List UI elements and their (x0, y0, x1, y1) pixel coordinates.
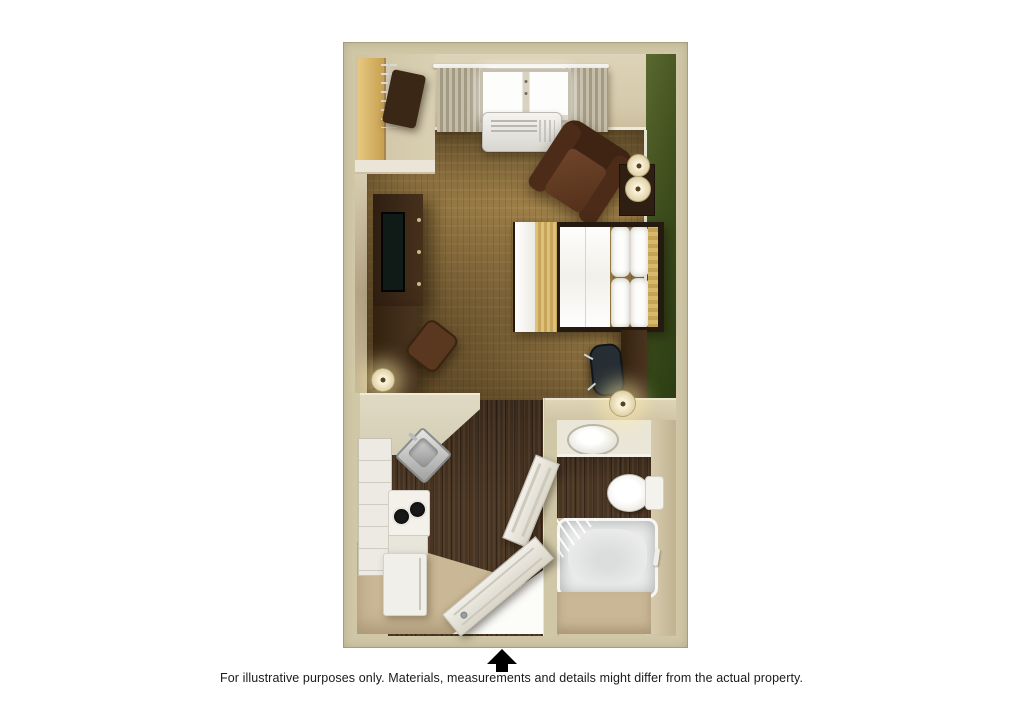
bed-side-rail (557, 327, 664, 332)
up-arrow-icon (487, 649, 517, 673)
pillow (611, 278, 630, 329)
door-knob (459, 610, 469, 620)
sink-faucet (408, 432, 418, 442)
curtain-left (437, 68, 483, 132)
ac-vent (539, 120, 555, 142)
refrigerator (383, 553, 427, 616)
pillow (611, 226, 630, 277)
pillow (630, 226, 649, 277)
bed-foot-sheet (515, 222, 535, 332)
pillow (630, 278, 649, 329)
bathroom-floor (557, 592, 651, 634)
table-lamp (371, 368, 395, 392)
window-lock (524, 80, 527, 83)
vanity-lamp (609, 390, 636, 417)
bed-side-rail (557, 222, 664, 227)
dishwasher (388, 535, 428, 555)
closet-shelf-edge (355, 160, 435, 174)
stove-burner (408, 500, 427, 519)
bed-runner-gold (535, 222, 557, 332)
drawer-knob (417, 250, 421, 254)
window-lock (524, 92, 527, 95)
disclaimer-caption: For illustrative purposes only. Material… (0, 671, 1023, 685)
ac-grille (491, 120, 537, 134)
drawer-knob (417, 282, 421, 286)
two-burner-stove (388, 490, 430, 537)
headboard-panel (648, 222, 658, 332)
nightstand-lamp (627, 154, 650, 177)
floor-plan (343, 42, 688, 648)
work-desk (621, 330, 647, 398)
drawer-knob (417, 218, 421, 222)
bathroom (557, 420, 676, 634)
arrow-head (487, 649, 517, 664)
television (381, 212, 405, 292)
nightstand-lamp (625, 176, 651, 202)
toilet-tank (645, 476, 664, 510)
bed-duvet (560, 222, 610, 332)
queen-bed (513, 222, 664, 332)
page: { "caption": { "text": "For illustrative… (0, 0, 1023, 716)
sink-basin (407, 436, 440, 469)
headboard (658, 222, 664, 332)
tv-console (373, 194, 423, 306)
bathroom-sink (567, 424, 619, 456)
